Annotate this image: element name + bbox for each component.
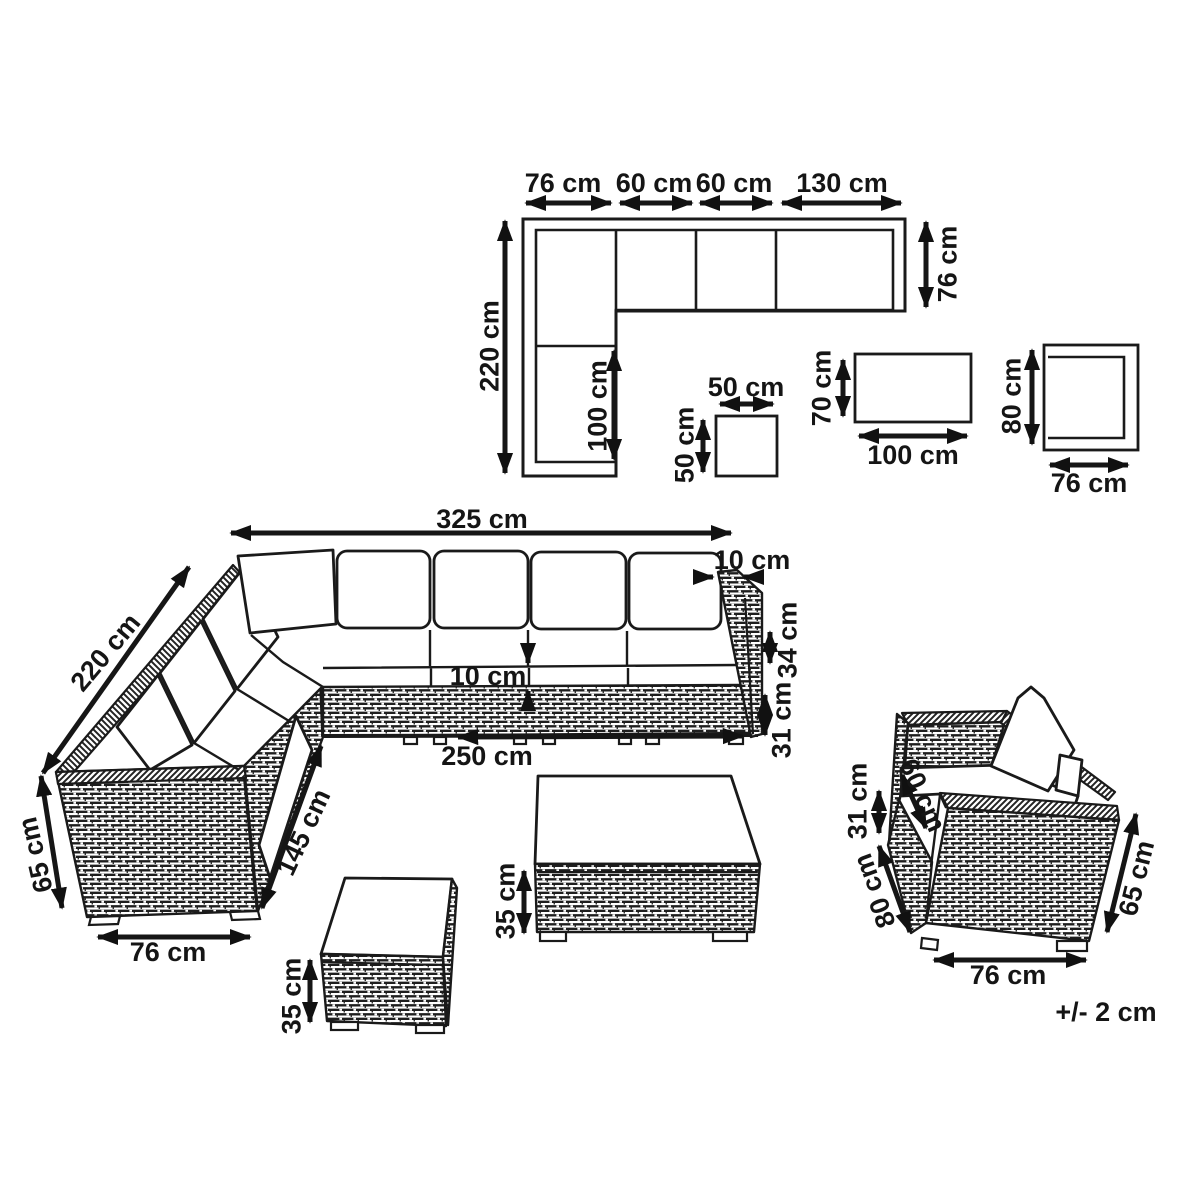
svg-text:50 cm: 50 cm xyxy=(670,407,700,484)
svg-text:50 cm: 50 cm xyxy=(708,372,785,402)
svg-text:34 cm: 34 cm xyxy=(773,602,803,679)
svg-text:70 cm: 70 cm xyxy=(807,350,837,427)
svg-text:100 cm: 100 cm xyxy=(867,440,959,470)
svg-text:80 cm: 80 cm xyxy=(997,358,1027,435)
svg-text:100 cm: 100 cm xyxy=(583,360,613,452)
svg-text:10 cm: 10 cm xyxy=(450,661,527,691)
svg-text:76 cm: 76 cm xyxy=(525,168,602,198)
svg-text:130 cm: 130 cm xyxy=(796,168,888,198)
svg-text:76 cm: 76 cm xyxy=(933,226,963,303)
svg-text:35 cm: 35 cm xyxy=(491,863,521,940)
svg-text:76 cm: 76 cm xyxy=(130,937,207,967)
svg-text:60 cm: 60 cm xyxy=(616,168,693,198)
svg-text:10 cm: 10 cm xyxy=(714,545,791,575)
svg-text:220 cm: 220 cm xyxy=(475,300,505,392)
svg-text:76 cm: 76 cm xyxy=(1051,468,1128,498)
svg-text:35 cm: 35 cm xyxy=(277,958,307,1035)
svg-text:60 cm: 60 cm xyxy=(696,168,773,198)
svg-text:325 cm: 325 cm xyxy=(436,504,528,534)
svg-text:76 cm: 76 cm xyxy=(970,960,1047,990)
svg-text:31 cm: 31 cm xyxy=(767,682,797,759)
svg-text:31 cm: 31 cm xyxy=(843,763,873,840)
svg-text:250 cm: 250 cm xyxy=(441,741,533,771)
svg-text:+/- 2 cm: +/- 2 cm xyxy=(1055,997,1156,1027)
